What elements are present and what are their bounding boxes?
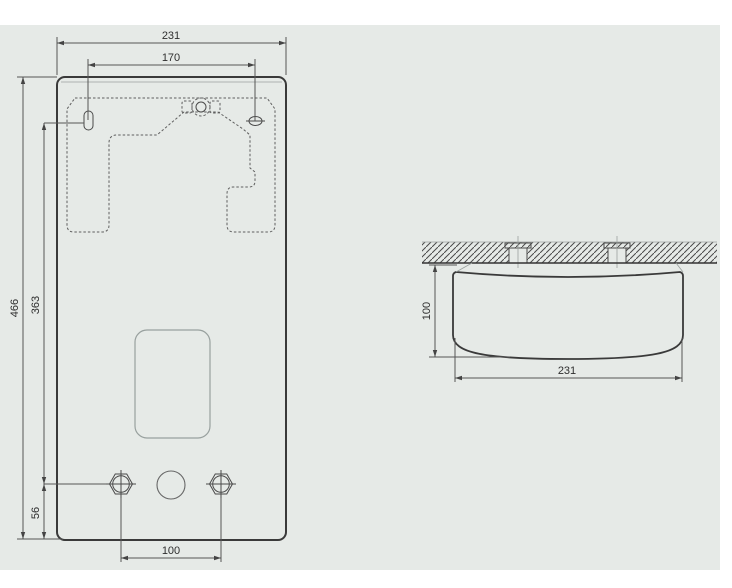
dim-label-front-height: 466 [9, 299, 21, 317]
dim-label-hole-spacing: 170 [162, 52, 180, 64]
page: 231 170 466 [0, 0, 732, 588]
wall-hatching [422, 242, 717, 263]
panel-background [0, 25, 720, 570]
dim-label-pipe-spacing: 100 [162, 545, 180, 557]
dim-label-mid-height: 363 [30, 296, 42, 314]
dim-label-bottom-offset: 56 [30, 507, 42, 519]
dim-label-side-depth: 100 [421, 302, 433, 320]
dim-label-side-width: 231 [558, 365, 576, 377]
dimension-drawing: 231 170 466 [0, 25, 720, 570]
dim-label-front-width: 231 [162, 30, 180, 42]
drawing-panel: 231 170 466 [0, 25, 720, 570]
